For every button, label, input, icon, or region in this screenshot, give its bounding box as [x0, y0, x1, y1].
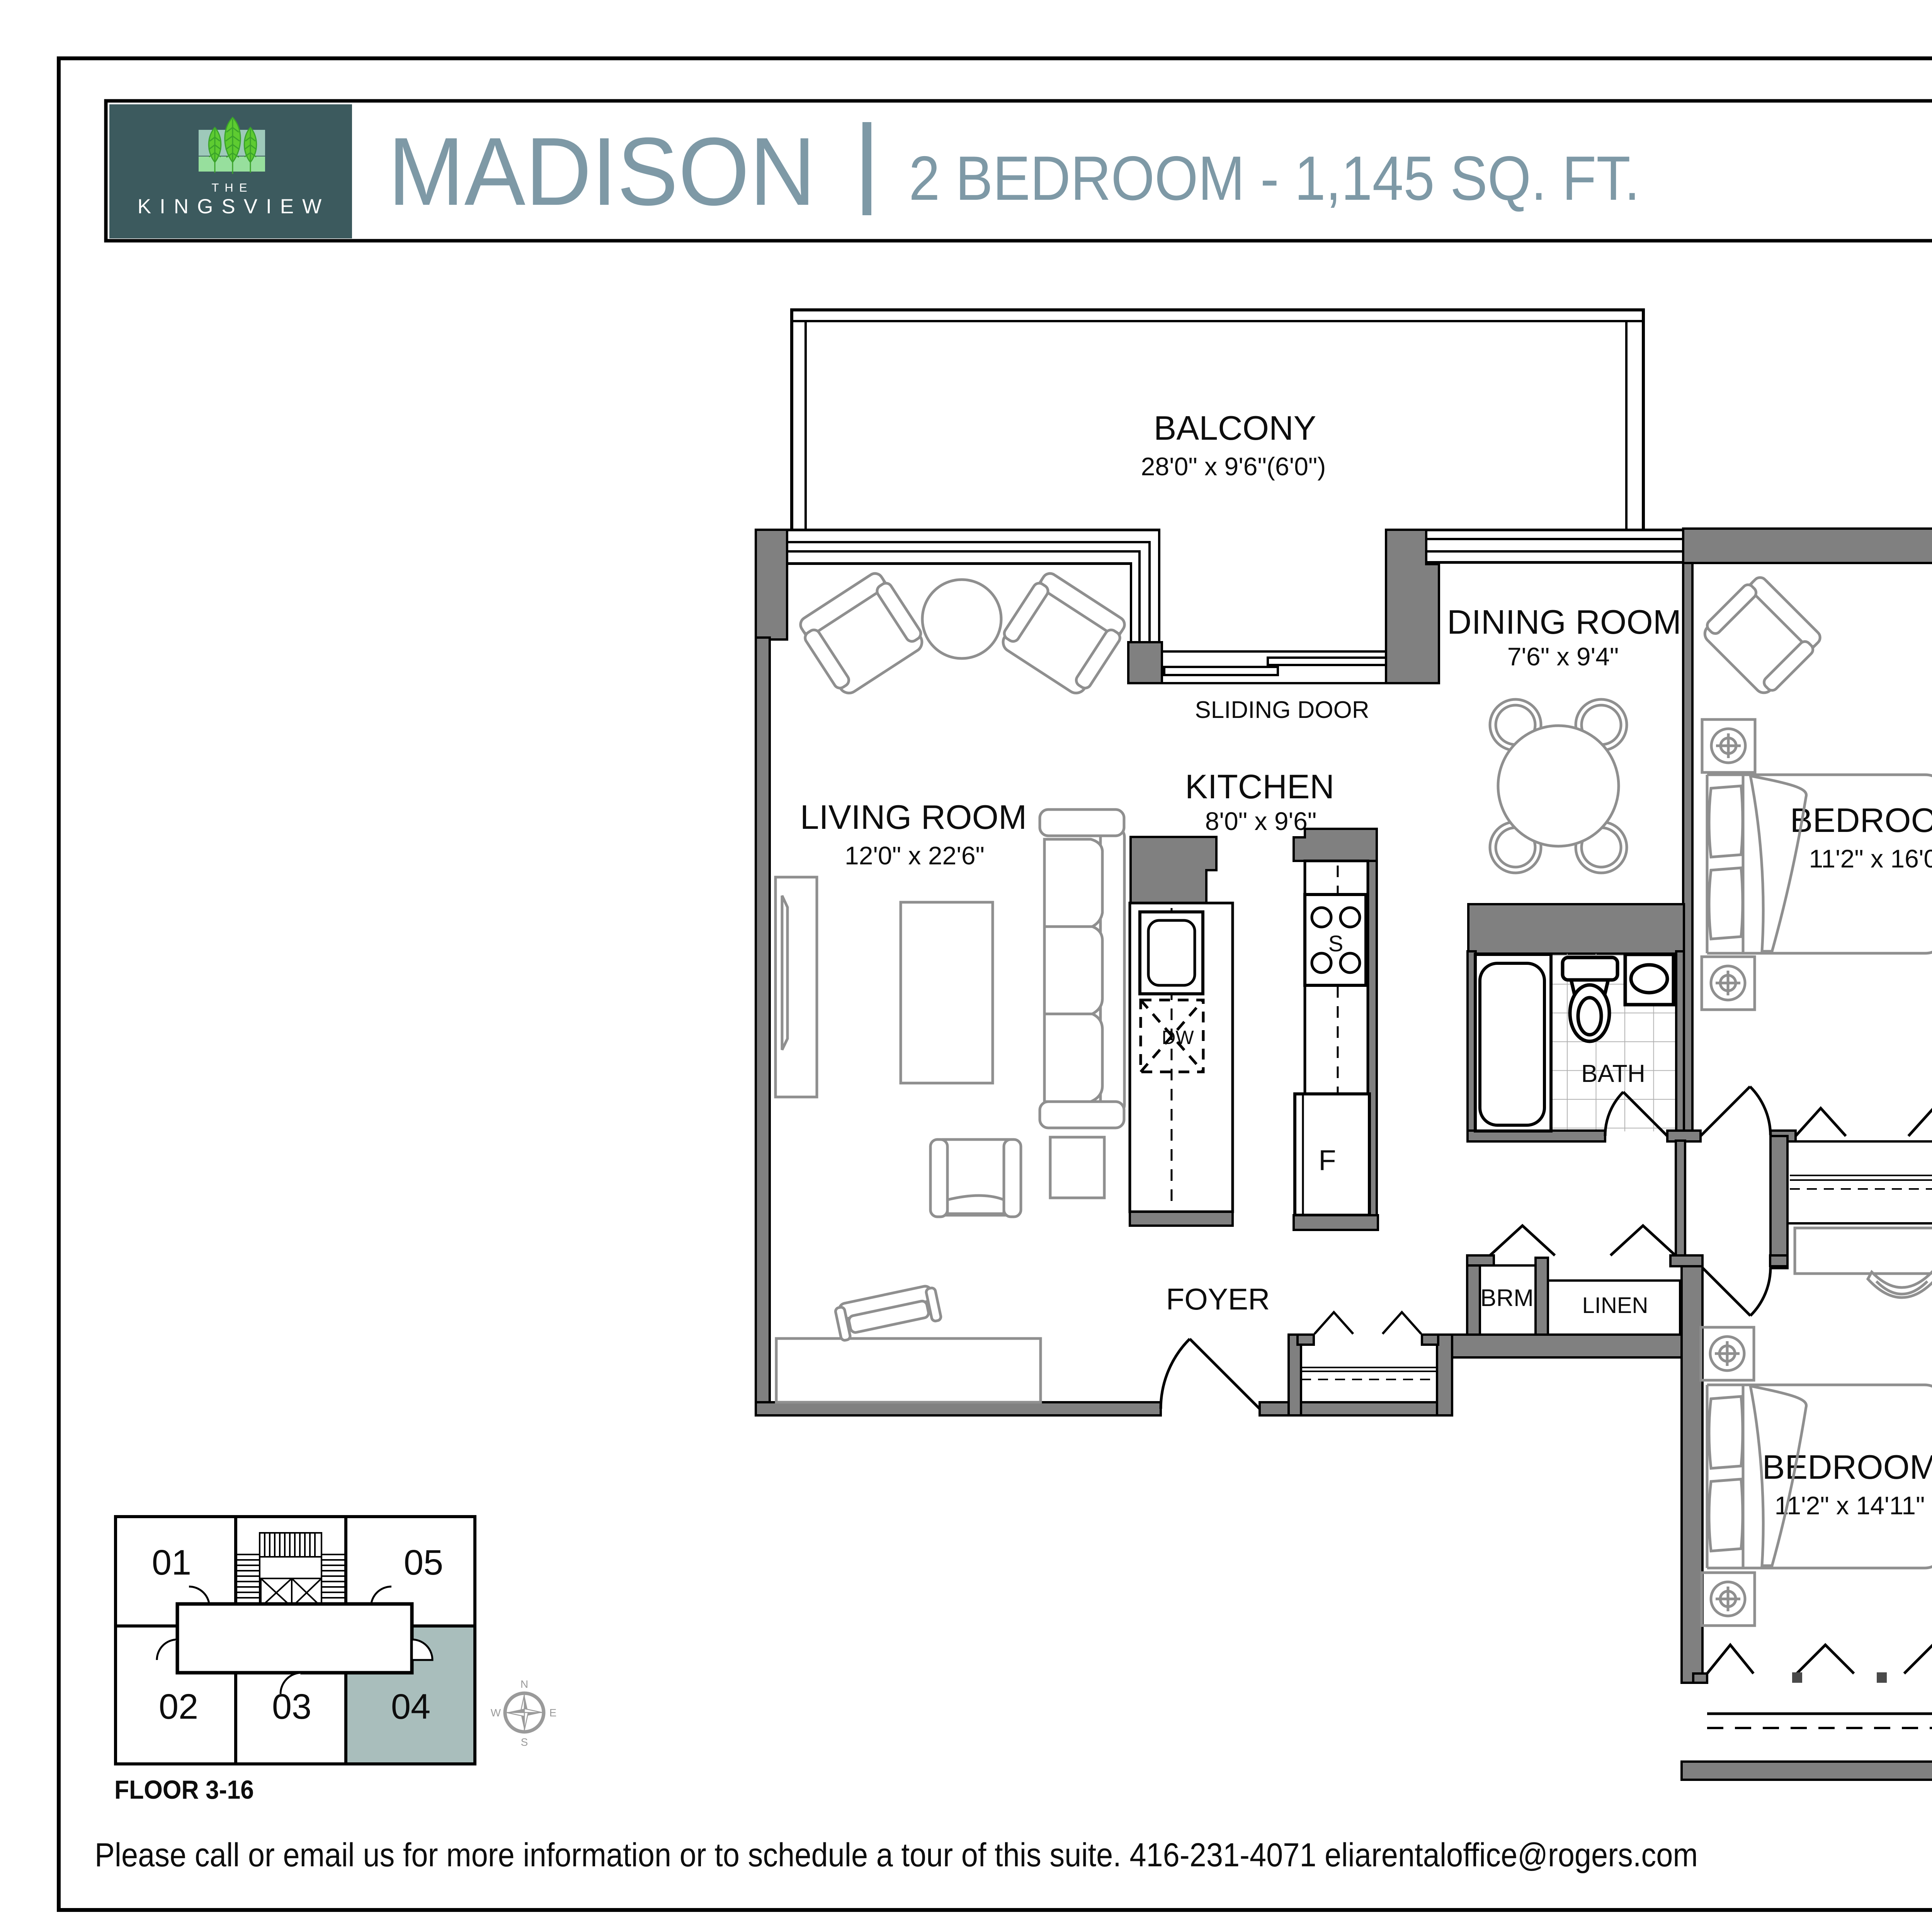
- svg-text:28'0" x 9'6"(6'0"): 28'0" x 9'6"(6'0"): [1141, 452, 1326, 481]
- svg-text:KITCHEN: KITCHEN: [1185, 767, 1334, 806]
- svg-text:05: 05: [404, 1543, 443, 1582]
- svg-text:W: W: [491, 1707, 501, 1719]
- svg-text:7'6" x 9'4": 7'6" x 9'4": [1507, 642, 1619, 671]
- svg-text:SLIDING DOOR: SLIDING DOOR: [1195, 697, 1369, 723]
- svg-text:12'0" x 22'6": 12'0" x 22'6": [845, 841, 985, 870]
- svg-text:BEDROOM: BEDROOM: [1790, 801, 1932, 839]
- svg-text:F: F: [1318, 1144, 1336, 1176]
- svg-text:BRM: BRM: [1480, 1285, 1534, 1311]
- svg-text:BEDROOM: BEDROOM: [1762, 1448, 1932, 1486]
- svg-text:LINEN: LINEN: [1582, 1293, 1648, 1318]
- svg-text:01: 01: [152, 1543, 191, 1582]
- svg-text:11'2" x 14'11": 11'2" x 14'11": [1775, 1491, 1925, 1520]
- svg-text:DW: DW: [1162, 1027, 1194, 1048]
- svg-text:BATH: BATH: [1581, 1060, 1645, 1087]
- svg-text:S: S: [1328, 931, 1344, 956]
- svg-text:DINING ROOM: DINING ROOM: [1447, 603, 1681, 641]
- svg-text:2 BEDROOM - 1,145 SQ. FT.: 2 BEDROOM - 1,145 SQ. FT.: [909, 143, 1640, 213]
- svg-text:04: 04: [391, 1687, 430, 1726]
- svg-text:Please call or email us for mo: Please call or email us for more informa…: [95, 1837, 1698, 1874]
- svg-text:N: N: [520, 1678, 528, 1690]
- svg-text:02: 02: [159, 1687, 198, 1726]
- svg-text:03: 03: [272, 1687, 311, 1726]
- svg-text:BALCONY: BALCONY: [1154, 409, 1316, 447]
- svg-text:E: E: [549, 1707, 557, 1719]
- svg-text:8'0" x 9'6": 8'0" x 9'6": [1205, 807, 1317, 835]
- svg-text:KINGSVIEW: KINGSVIEW: [138, 195, 330, 218]
- svg-text:THE: THE: [212, 181, 253, 194]
- svg-text:FLOOR 3-16: FLOOR 3-16: [114, 1775, 254, 1804]
- svg-text:FOYER: FOYER: [1166, 1282, 1270, 1316]
- svg-text:MADISON: MADISON: [388, 117, 816, 225]
- svg-text:S: S: [521, 1736, 528, 1748]
- svg-text:11'2" x 16'0": 11'2" x 16'0": [1809, 844, 1932, 873]
- svg-text:LIVING ROOM: LIVING ROOM: [800, 798, 1027, 836]
